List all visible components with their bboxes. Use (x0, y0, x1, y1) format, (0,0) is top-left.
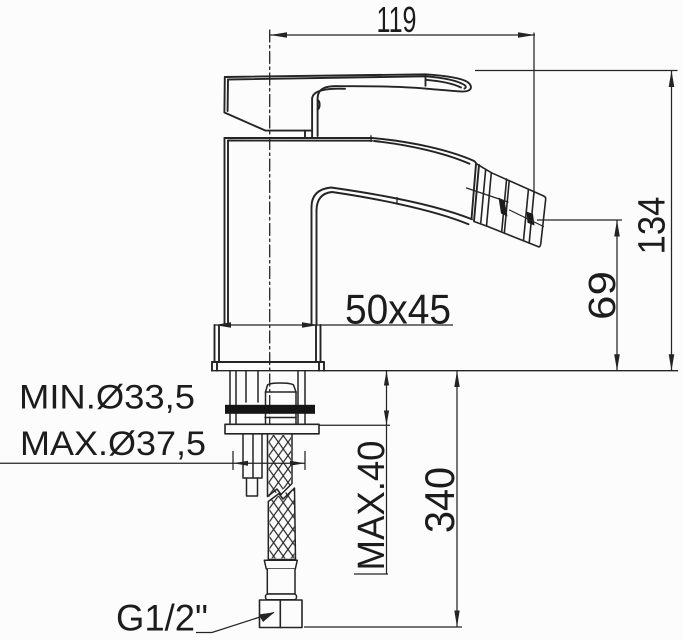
svg-text:MAX.40: MAX.40 (351, 441, 393, 571)
svg-text:MAX.Ø37,5: MAX.Ø37,5 (20, 425, 206, 463)
svg-text:69: 69 (582, 271, 624, 320)
svg-text:134: 134 (632, 197, 674, 255)
svg-text:119: 119 (377, 0, 417, 40)
svg-text:MIN.Ø33,5: MIN.Ø33,5 (19, 379, 195, 417)
svg-text:340: 340 (416, 467, 463, 533)
svg-text:50x45: 50x45 (345, 286, 451, 333)
svg-text:G1/2": G1/2" (116, 598, 208, 639)
